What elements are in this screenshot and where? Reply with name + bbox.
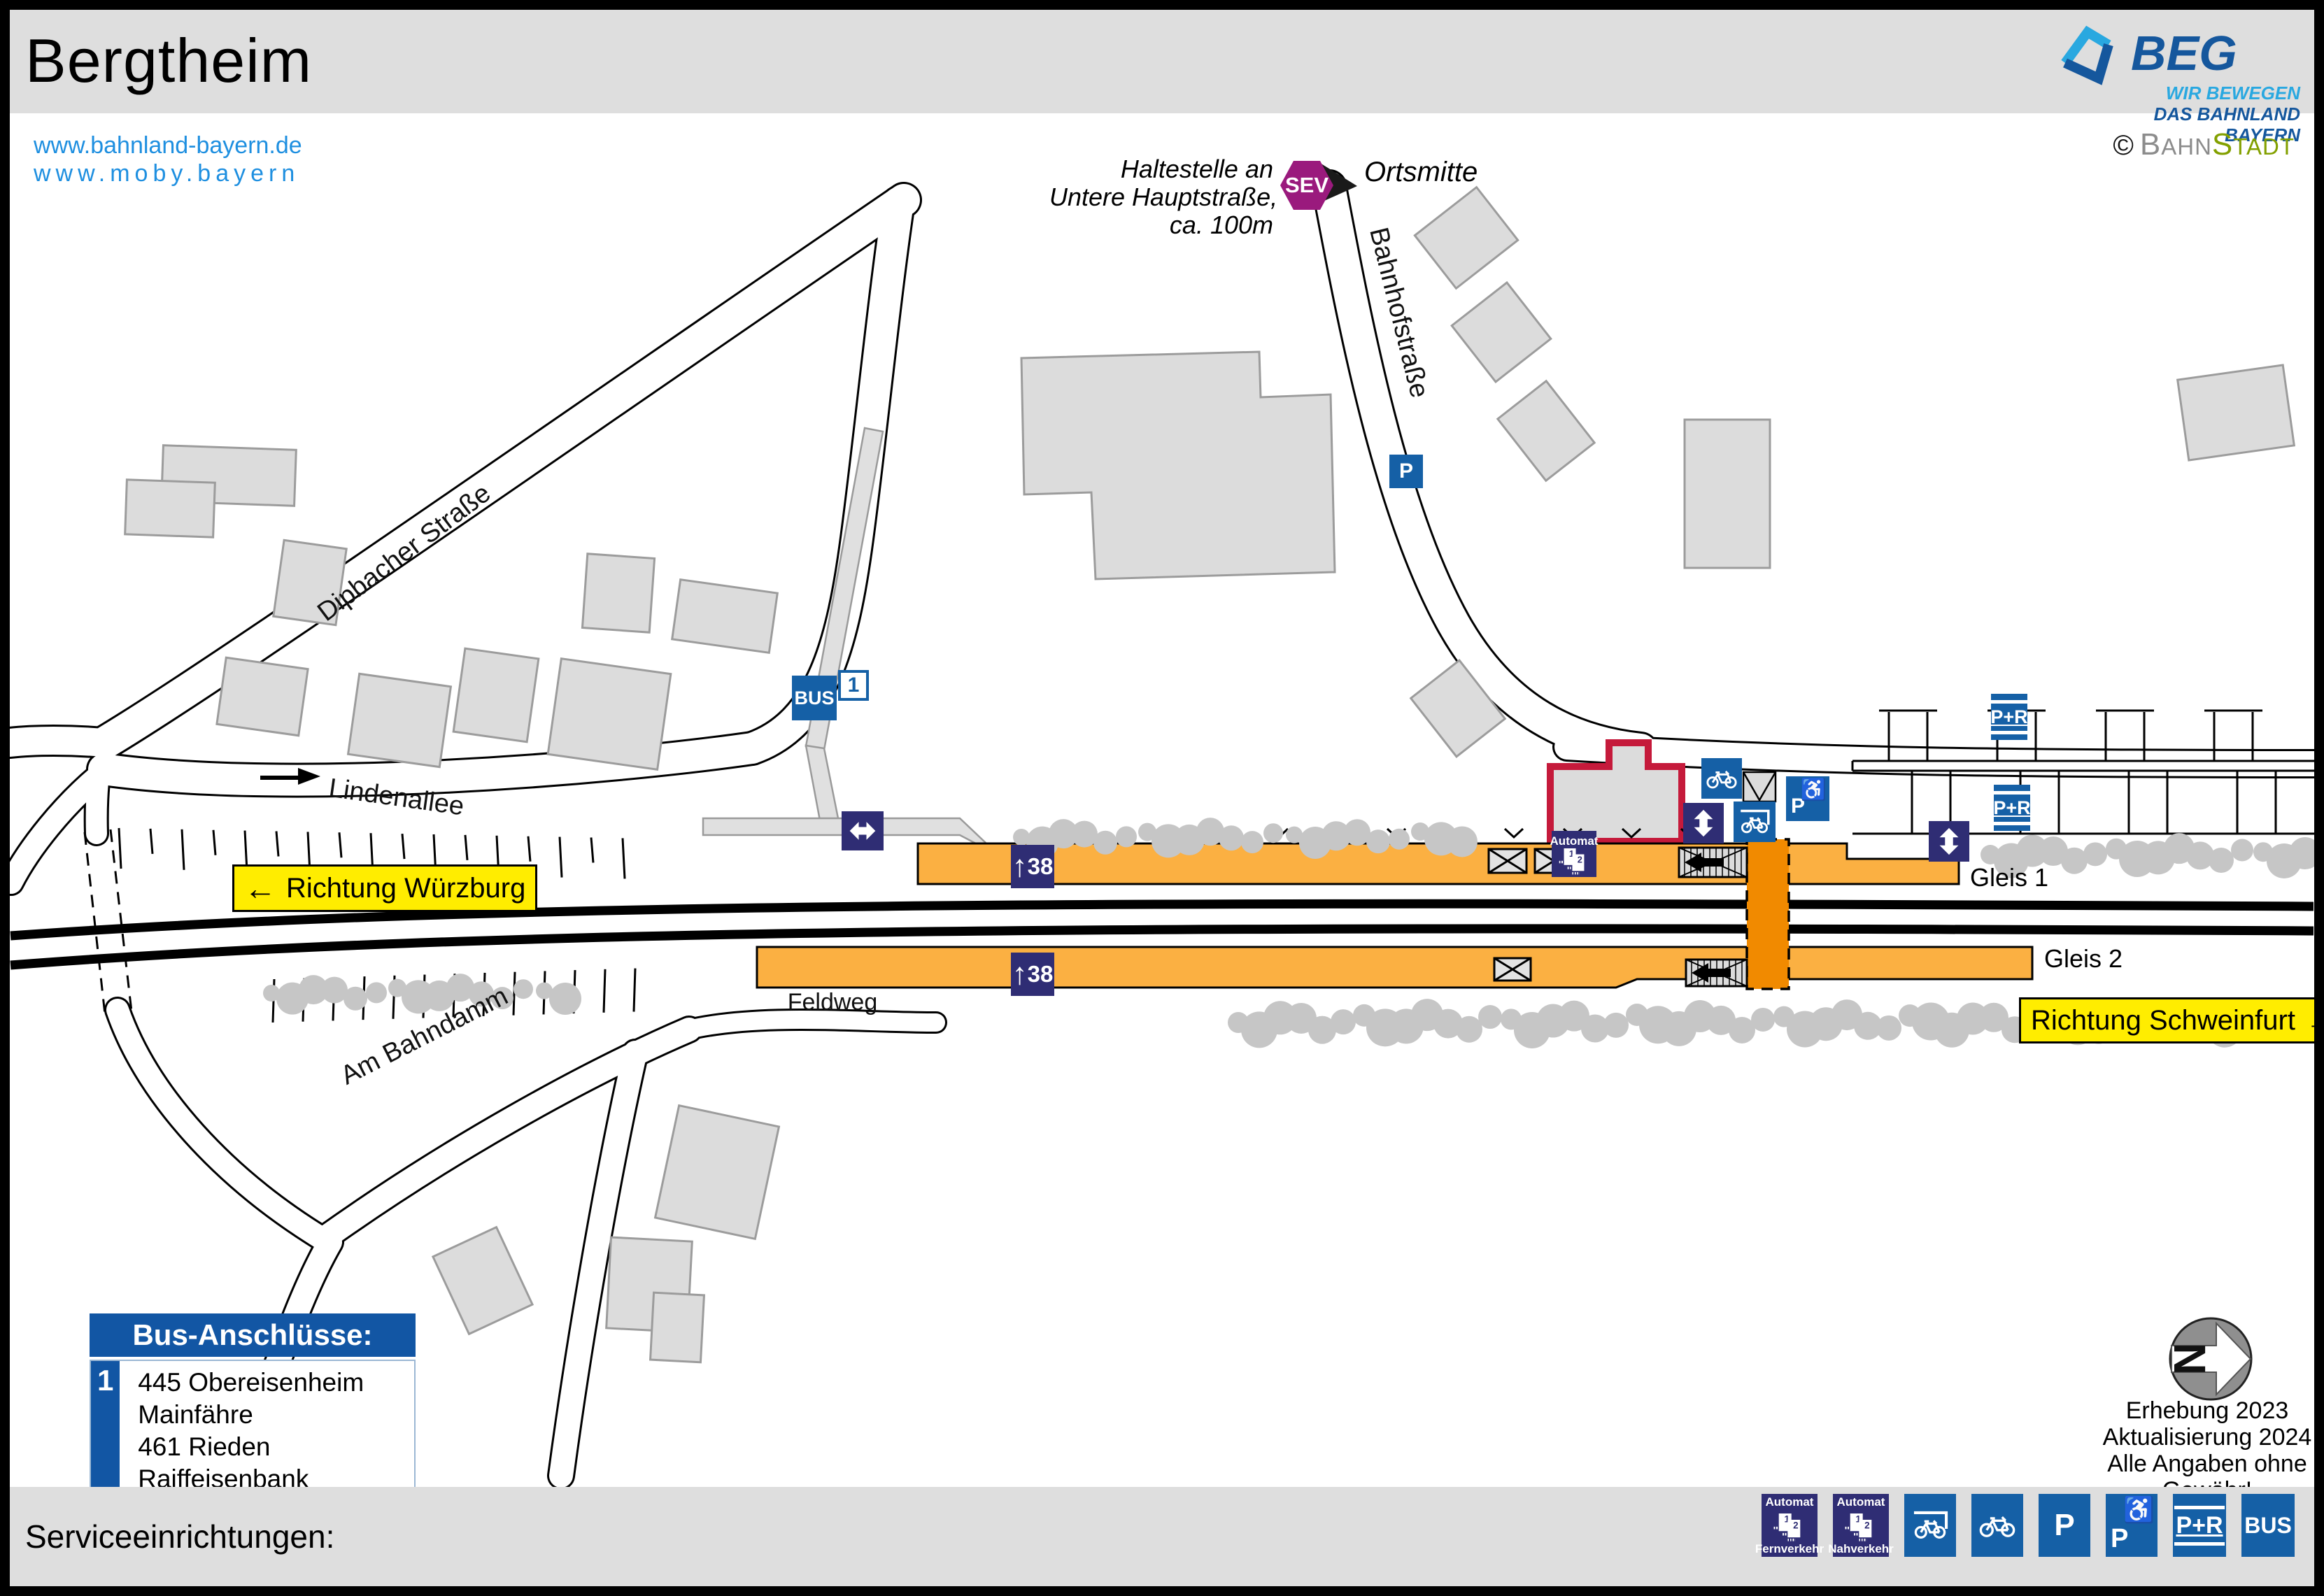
gleis-1-label: Gleis 1 <box>1970 863 2048 892</box>
wheelchair-icon: ♿ <box>1801 778 1827 802</box>
covered-bike-parking-icon <box>1734 801 1776 842</box>
ticket-machine-icon: Automat 1 2 <box>1552 831 1596 877</box>
platform-2 <box>757 947 2032 988</box>
legend-park-and-ride-icon: P+R <box>2173 1494 2226 1557</box>
platform-height-icon-2: ↑38 <box>1011 953 1054 996</box>
stepless-access-icon-station <box>1683 803 1724 843</box>
copyright-symbol: © <box>2113 130 2134 161</box>
stepless-access-icon-west <box>842 811 884 850</box>
services-legend: Automat 1 2 Fernverkehr Automat 1 2 Nahv… <box>1762 1494 2295 1557</box>
platform-height-icon-1: ↑38 <box>1011 845 1054 888</box>
services-title: Serviceeinrichtungen: <box>25 1518 334 1555</box>
bahnstadt-part2: STADT <box>2212 127 2295 162</box>
link-bahnland-bayern[interactable]: www.bahnland-bayern.de <box>34 131 302 159</box>
legend-bike-icon <box>1971 1494 2023 1557</box>
bus-connections-panel: Bus-Anschlüsse: 1 445 Obereisenheim Main… <box>90 1313 416 1497</box>
parking-icon-bahnhofstrasse: P <box>1389 455 1423 488</box>
wheelchair-icon: ♿ <box>2123 1495 2155 1525</box>
direction-wuerzburg: ← Richtung Würzburg <box>232 864 537 912</box>
street-label-feldweg: Feldweg <box>788 989 878 1016</box>
station-map-page: Bergtheim BEG WIR BEWEGEN DAS BAHNLAND B… <box>0 0 2324 1596</box>
bus-line-number: 1 <box>91 1361 120 1495</box>
stepless-access-icon-east <box>1929 821 1969 862</box>
compass-icon: N <box>2164 1318 2251 1399</box>
sev-note: Haltestelle an Untere Hauptstraße, ca. 1… <box>1049 155 1273 239</box>
bahnstadt-part1: BAHN <box>2140 127 2212 162</box>
bus-connection-1: 445 Obereisenheim Mainfähre <box>138 1367 414 1431</box>
dashed-crossing <box>85 829 132 1014</box>
ortsmitte-label: Ortsmitte <box>1364 157 1478 188</box>
legend-accessible-parking-icon: P ♿ <box>2106 1494 2158 1557</box>
footer: Serviceeinrichtungen: Automat 1 2 Fernve… <box>10 1487 2314 1586</box>
legend-automat-nahverkehr-icon: Automat 1 2 Nahverkehr <box>1833 1494 1889 1557</box>
legend-parking-icon: P <box>2039 1494 2090 1557</box>
bus-connection-2: 461 Rieden Raiffeisenbank <box>138 1431 414 1495</box>
update-note: Aktualisierung 2024 <box>2088 1424 2324 1451</box>
legend-automat-fernverkehr-icon: Automat 1 2 Fernverkehr <box>1762 1494 1818 1557</box>
arrow-right-icon: → <box>2305 1002 2324 1039</box>
gleis-2-label: Gleis 2 <box>2044 944 2123 974</box>
legend-covered-bike-icon <box>1904 1494 1956 1557</box>
bahnstadt-credit: ©BAHNSTADT <box>2113 127 2295 162</box>
bus-panel-title: Bus-Anschlüsse: <box>90 1313 416 1357</box>
bus-stop-icon: BUS <box>792 676 837 720</box>
bus-line-1-badge: 1 <box>838 670 869 701</box>
legend-bus-icon: BUS <box>2241 1494 2295 1557</box>
accessible-parking-icon: P ♿ <box>1786 776 1829 821</box>
track-crossing <box>1747 839 1789 989</box>
link-moby-bayern[interactable]: www.moby.bayern <box>34 159 302 187</box>
platforms <box>757 843 2032 988</box>
park-and-ride-icon-1: P+R <box>1991 694 2027 740</box>
survey-note: Erhebung 2023 <box>2088 1397 2324 1424</box>
bike-parking-icon <box>1701 758 1742 799</box>
arrow-left-icon: ← <box>244 869 276 907</box>
compass-n-label: N <box>2164 1343 2215 1375</box>
park-and-ride-icon-2: P+R <box>1994 785 2030 831</box>
shelter-hut <box>1743 772 1776 801</box>
direction-schweinfurt: Richtung Schweinfurt → <box>2019 997 2324 1043</box>
links-block: www.bahnland-bayern.de www.moby.bayern <box>34 131 302 187</box>
